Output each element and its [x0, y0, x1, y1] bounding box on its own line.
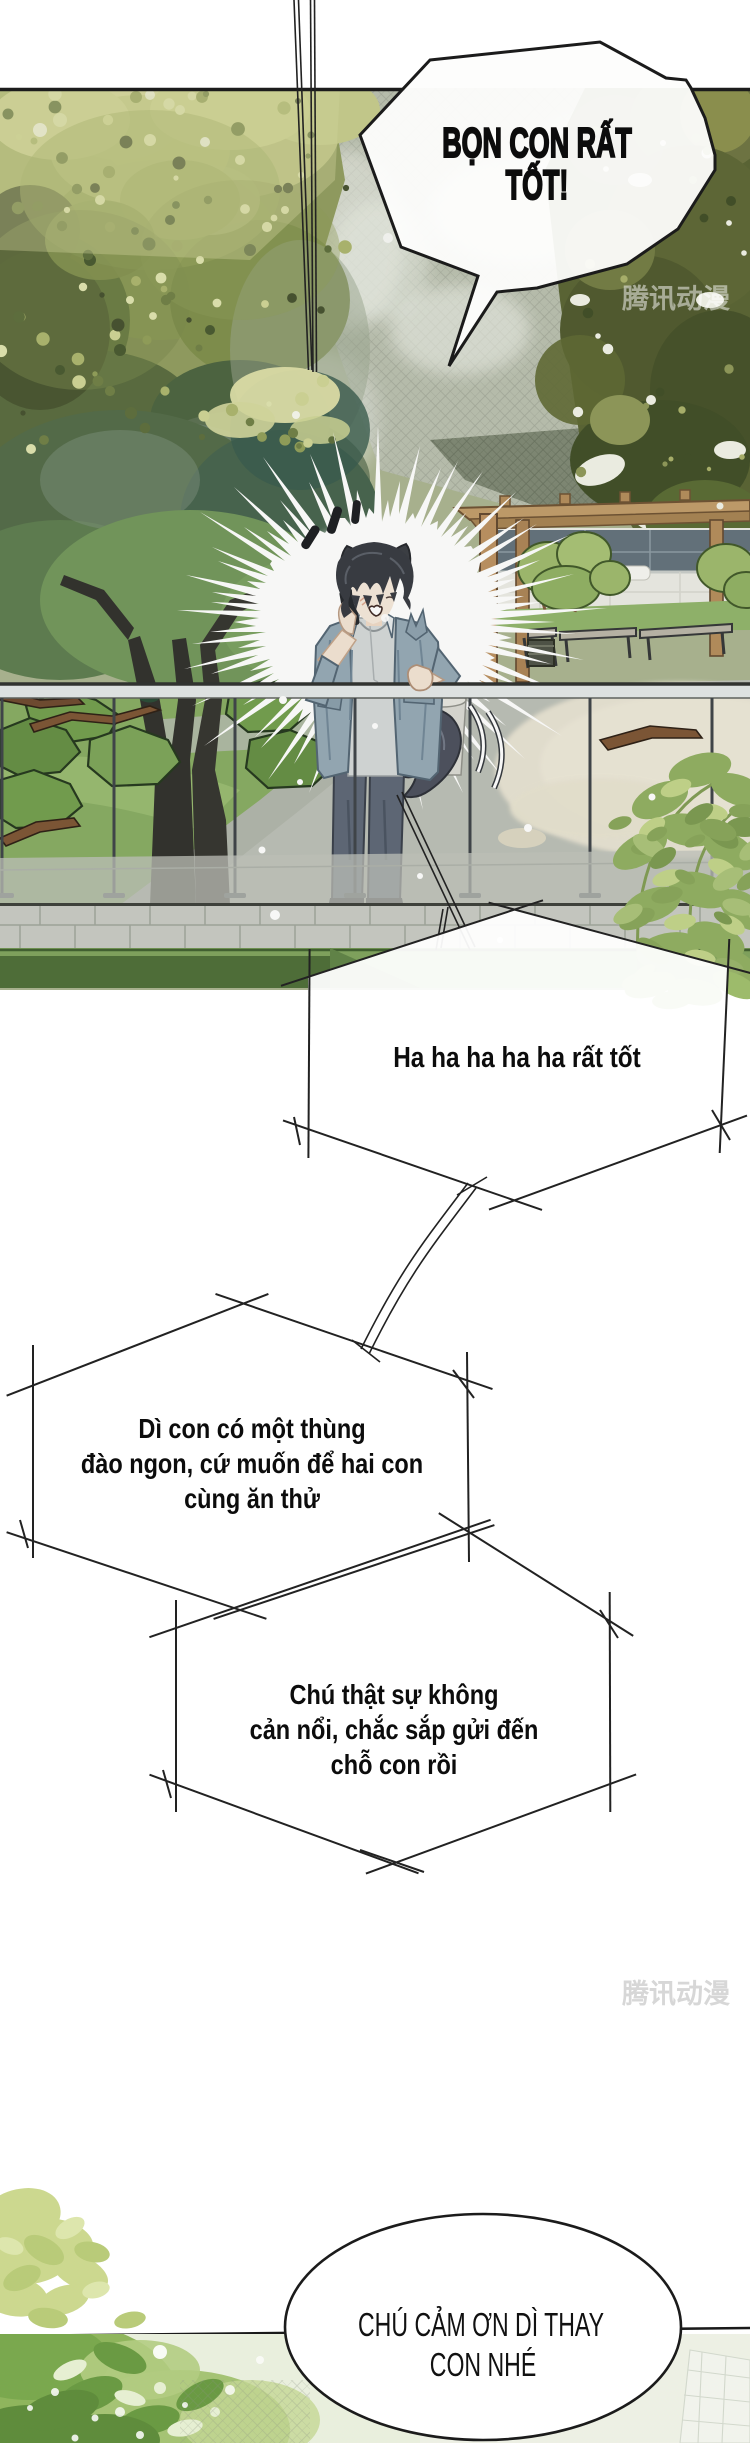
svg-text:đào ngon, cứ muốn để hai con: đào ngon, cứ muốn để hai con: [81, 1449, 423, 1479]
svg-text:腾讯动漫: 腾讯动漫: [622, 1979, 730, 2009]
svg-text:BỌN CON RẤT: BỌN CON RẤT: [442, 119, 632, 167]
svg-text:Dì con có một thùng: Dì con có một thùng: [138, 1414, 365, 1444]
svg-text:cùng ăn thử: cùng ăn thử: [184, 1484, 320, 1514]
svg-text:CON NHÉ: CON NHÉ: [430, 2347, 536, 2384]
svg-text:cản nổi, chắc sắp gửi đến: cản nổi, chắc sắp gửi đến: [250, 1713, 539, 1745]
svg-text:腾讯动漫: 腾讯动漫: [622, 284, 730, 314]
svg-text:CHÚ CẢM ƠN DÌ THAY: CHÚ CẢM ƠN DÌ THAY: [358, 2306, 604, 2344]
svg-text:Chú thật sự không: Chú thật sự không: [290, 1680, 499, 1710]
svg-text:TỐT!: TỐT!: [506, 161, 569, 209]
svg-text:Ha ha ha ha ha rất tốt: Ha ha ha ha ha rất tốt: [393, 1041, 641, 1073]
svg-text:chỗ con rồi: chỗ con rồi: [331, 1748, 458, 1780]
